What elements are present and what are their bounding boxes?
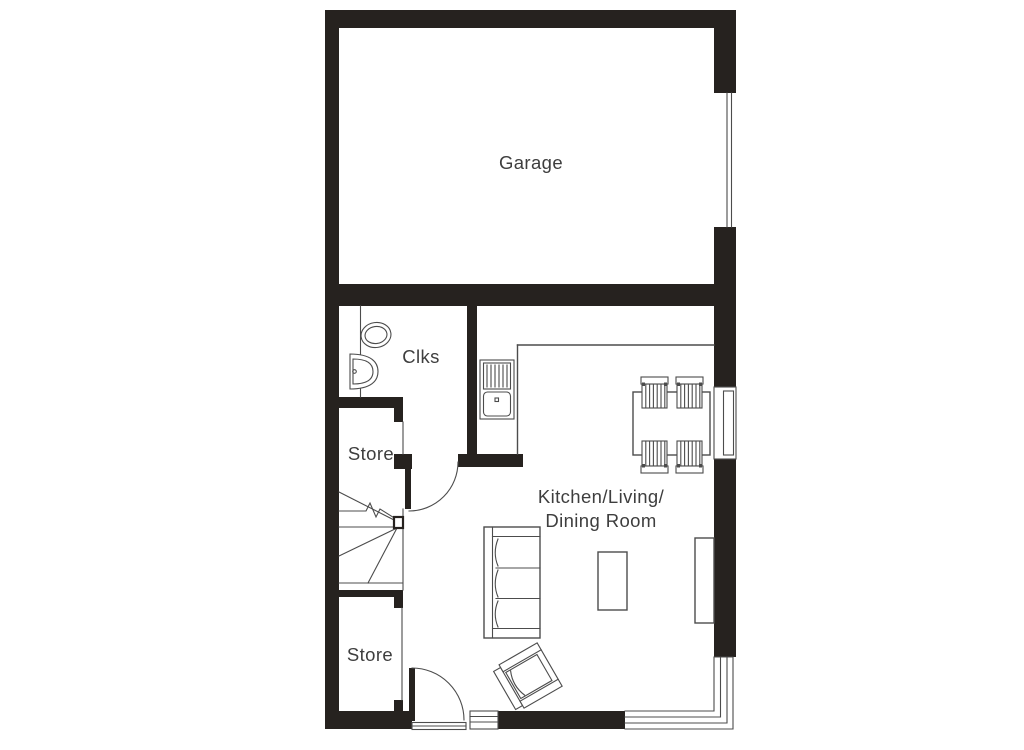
kitchen-window-glazing <box>724 391 734 455</box>
corner-glazing-line-4 <box>625 657 733 729</box>
stair-top-edge <box>339 492 402 524</box>
wall-store-bottom-end <box>394 700 403 711</box>
wall-store-bottom-top <box>325 590 403 597</box>
dining-chair <box>641 377 668 408</box>
store-bottom-label: Store <box>347 644 393 665</box>
sideboard <box>695 538 714 623</box>
wall-left <box>325 10 339 729</box>
stair-newel-post <box>394 517 403 528</box>
chair-nub <box>664 464 667 468</box>
wash-basin-icon <box>350 354 378 389</box>
floor-plan-page: Garage Clks Store Kitchen/Living/ Dining… <box>0 0 1024 750</box>
front-door-leaf <box>409 668 415 721</box>
store-top-label: Store <box>348 443 394 464</box>
internal-door-leaf <box>405 469 411 509</box>
wall-store-top-stub <box>394 408 403 422</box>
chair-nub <box>664 383 667 387</box>
toilet-icon <box>359 321 392 350</box>
floor-plan: Garage Clks Store Kitchen/Living/ Dining… <box>0 0 1024 750</box>
stair-winder-lines <box>339 528 397 583</box>
chair-nub <box>642 464 645 468</box>
wall-right-mid <box>714 227 736 387</box>
corner-glazing-line-2 <box>625 657 721 717</box>
bottom-window <box>470 711 498 729</box>
wall-kitchen-stub <box>458 454 523 467</box>
kitchen-living-label-line2: Dining Room <box>545 510 656 531</box>
corner-glazing <box>625 657 733 729</box>
coffee-table <box>598 552 627 610</box>
dining-chair <box>676 441 703 473</box>
wall-bottom-left <box>325 711 412 729</box>
sofa <box>484 527 540 638</box>
armchair <box>492 643 562 712</box>
kitchen-living-label-line1: Kitchen/Living/ <box>538 486 665 507</box>
wall-store-bottom-stub <box>394 597 403 608</box>
wall-bottom-mid <box>498 711 625 729</box>
garage-label: Garage <box>499 152 563 173</box>
garage-door <box>727 93 732 227</box>
wall-garage-division <box>325 284 736 306</box>
dining-chair <box>676 377 703 408</box>
front-door-swing <box>412 668 464 720</box>
corner-glazing-line-1 <box>625 657 714 711</box>
wall-right-lower <box>714 459 736 657</box>
front-door <box>409 668 466 730</box>
staircase <box>339 492 403 583</box>
wall-clks-right <box>467 306 477 454</box>
dining-chair <box>641 441 668 473</box>
internal-door-swing <box>409 462 458 511</box>
sink-bowl <box>484 392 511 416</box>
wall-store-top <box>325 397 403 408</box>
kitchen-sink <box>480 360 514 419</box>
chair-back <box>676 466 703 473</box>
chair-nub <box>699 464 702 468</box>
living-furniture <box>484 527 714 712</box>
chair-nub <box>677 383 680 387</box>
chair-back <box>676 377 703 384</box>
bottom-window-frame <box>470 711 498 729</box>
corner-glazing-line-3 <box>625 657 727 723</box>
cloakroom-label: Clks <box>402 346 440 367</box>
chair-nub <box>642 383 645 387</box>
chair-nub <box>699 383 702 387</box>
wall-door-jamb <box>394 454 412 469</box>
chair-back <box>641 466 668 473</box>
dining-set <box>633 377 710 473</box>
chair-nub <box>677 464 680 468</box>
wall-top <box>325 10 736 28</box>
wall-right-upper <box>714 10 736 93</box>
internal-door <box>405 462 458 511</box>
chair-back <box>641 377 668 384</box>
kitchen-window <box>714 387 736 459</box>
cloakroom-fixtures <box>350 321 393 389</box>
